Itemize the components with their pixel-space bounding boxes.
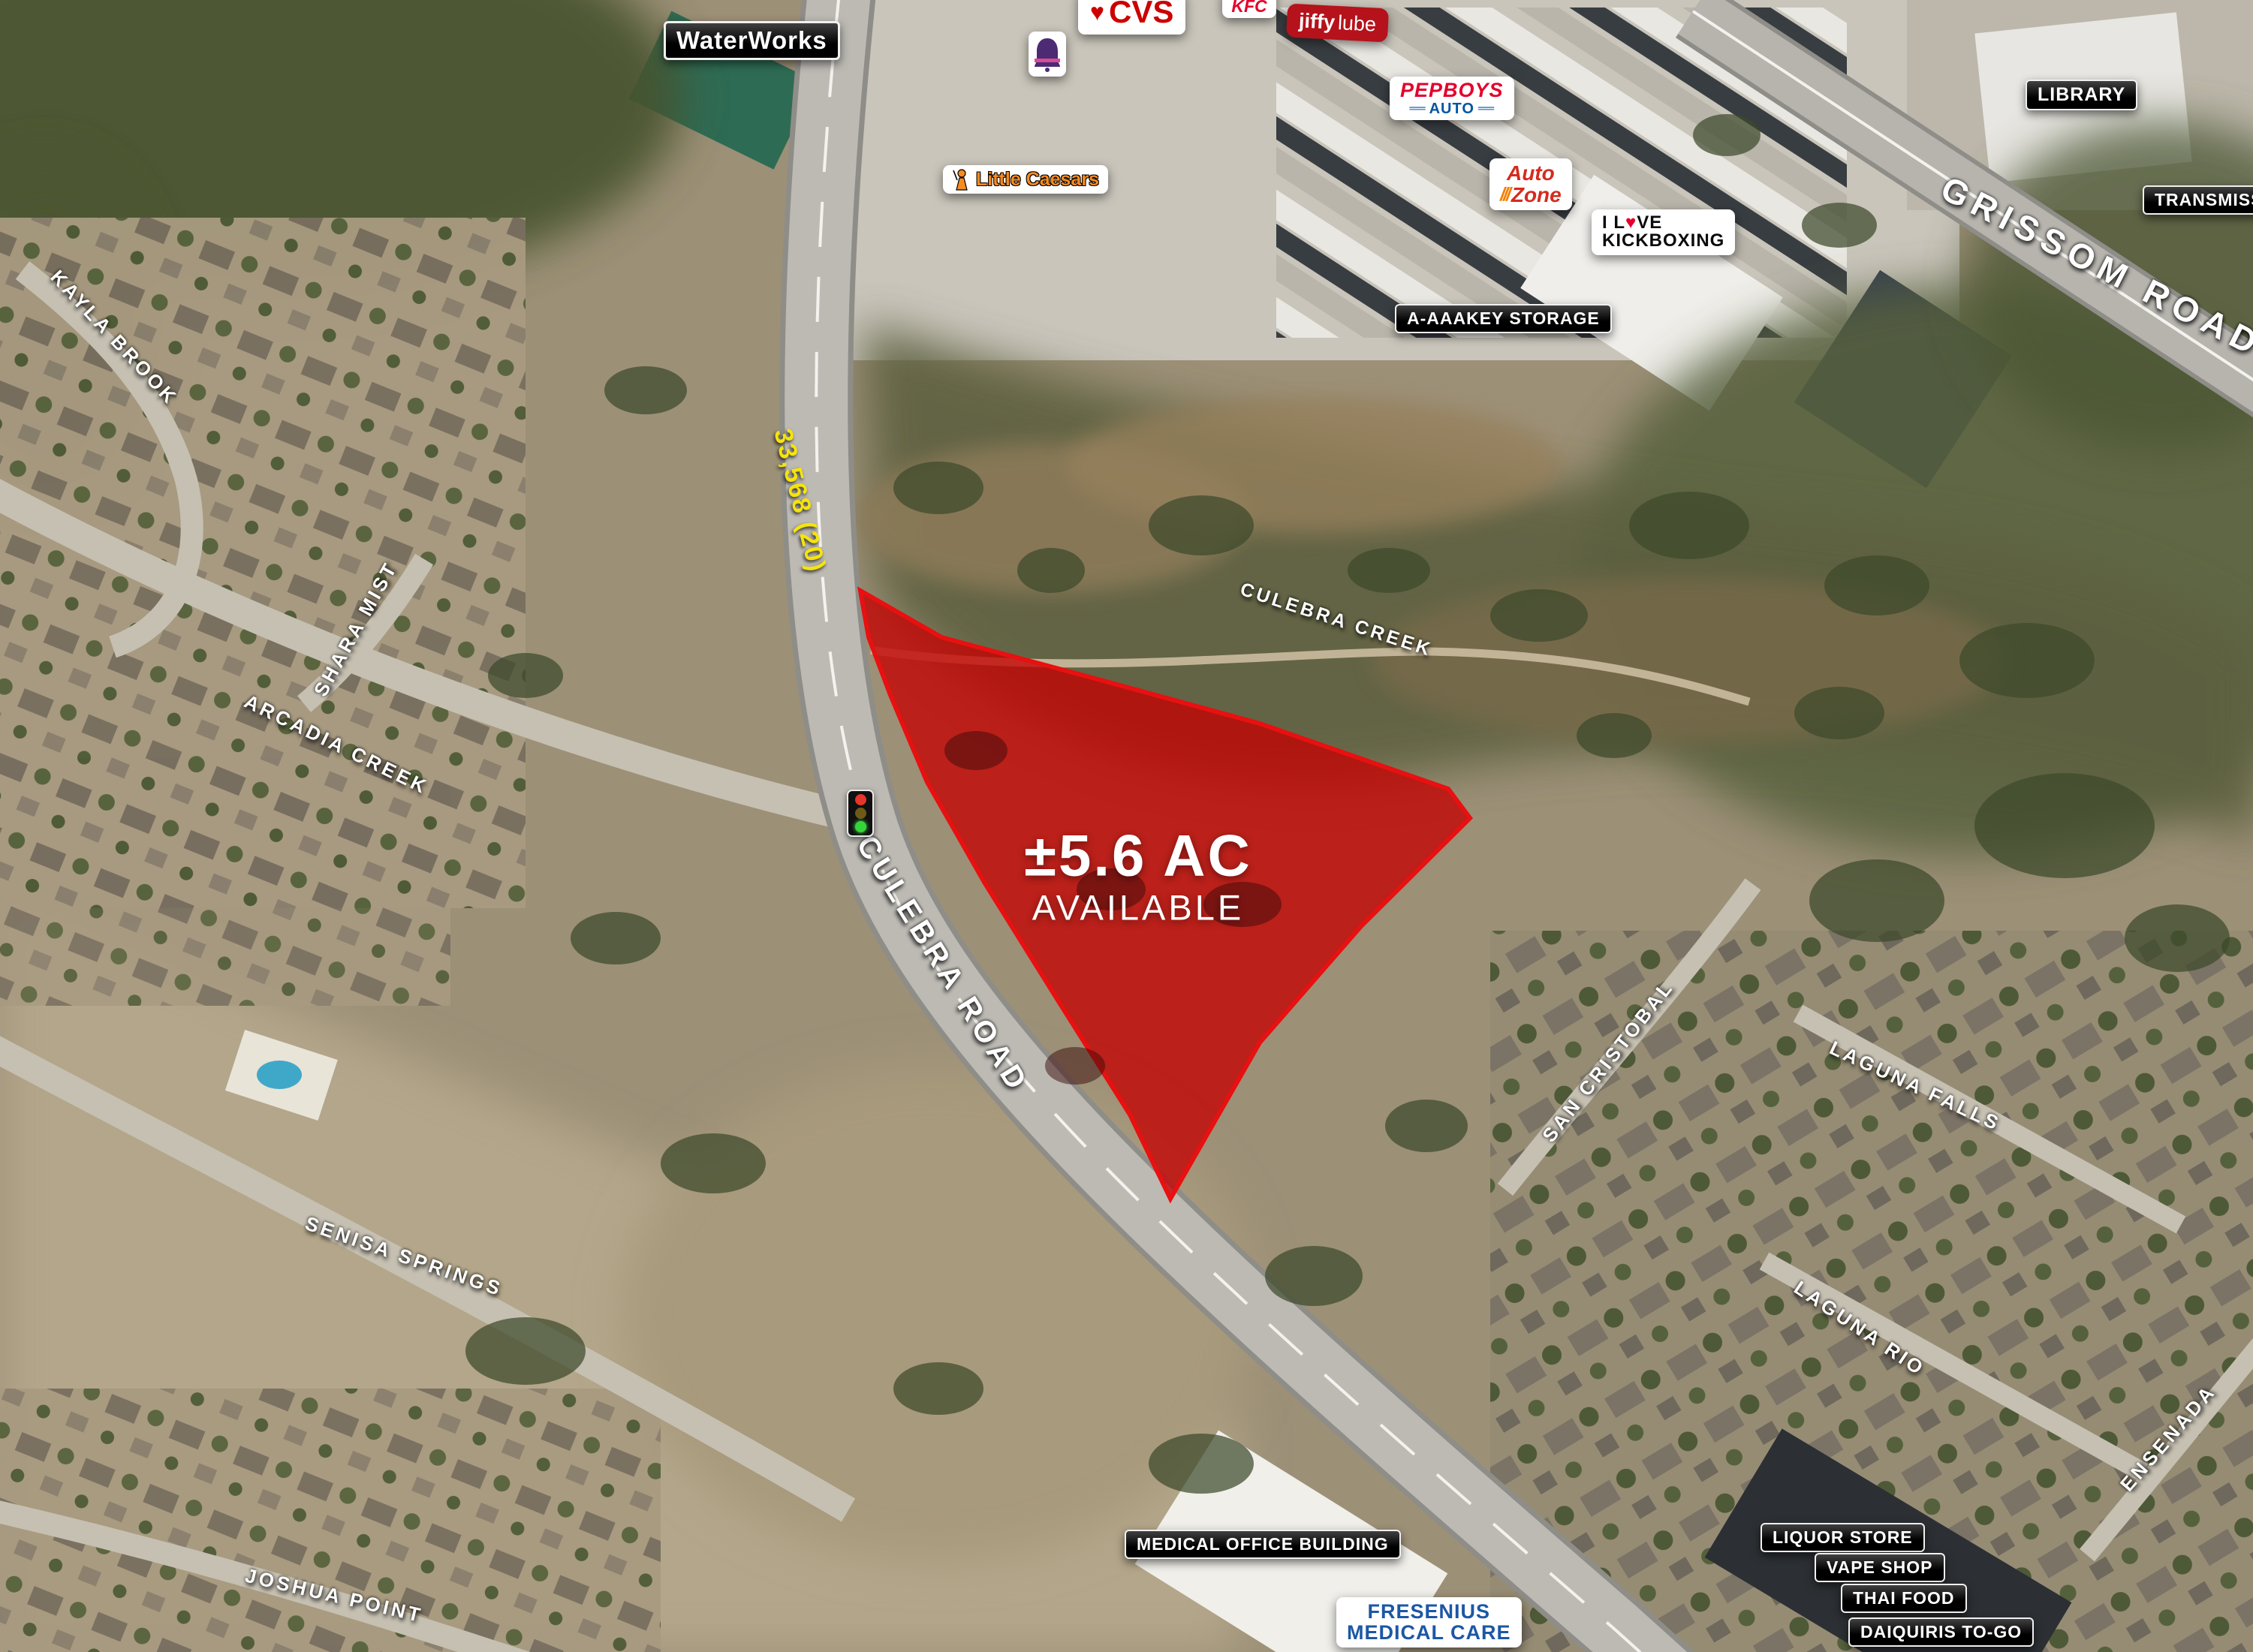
brand-logo-kfc: KFC: [1222, 0, 1276, 18]
parcel-status: AVAILABLE: [1024, 886, 1252, 928]
poi-label-a-aaakey-storage: A-AAAKEY STORAGE: [1395, 304, 1612, 333]
brand-logo-little-caesars: Little Caesars: [943, 165, 1108, 194]
pepboys-bar-left: ══: [1409, 103, 1425, 114]
brand-logo-pepboys: PEPBOYS ══ AUTO ══: [1390, 77, 1514, 120]
little-caesars-wordmark: Little Caesars: [976, 169, 1099, 191]
poi-label-medical-office-building: MEDICAL OFFICE BUILDING: [1125, 1530, 1401, 1559]
ilk-kickboxing-wordmark: KICKBOXING: [1602, 232, 1724, 250]
brand-logo-cvs: ♥ CVS: [1078, 0, 1185, 35]
parcel-acreage: ±5.6 AC: [1024, 826, 1252, 887]
ilk-ve: VE: [1637, 214, 1662, 232]
autozone-zone-wordmark: Zone: [1511, 185, 1562, 206]
pepboys-auto-wordmark: AUTO: [1429, 101, 1474, 116]
neighborhood-left: [0, 758, 450, 1006]
poi-label-liquor-store: LIQUOR STORE: [1761, 1523, 1925, 1552]
traffic-light-red: [855, 794, 866, 805]
aerial-property-map: { "parcel": { "area": "±5.6 AC", "status…: [0, 0, 2253, 1652]
brand-logo-i-love-kickboxing: I L♥VE KICKBOXING: [1592, 209, 1735, 255]
ilk-heart-icon: ♥: [1625, 214, 1637, 232]
traffic-light-green: [855, 821, 866, 832]
jiffy-wordmark: jiffy: [1298, 9, 1336, 34]
taco-bell-bell-icon: [1032, 35, 1062, 73]
poi-label-library: LIBRARY: [2026, 80, 2137, 110]
brand-logo-fresenius: FRESENIUS MEDICAL CARE: [1336, 1597, 1522, 1647]
little-caesars-mascot-icon: [952, 168, 971, 191]
lube-wordmark: lube: [1337, 11, 1377, 37]
fresenius-wordmark: FRESENIUS: [1367, 1602, 1490, 1623]
creek-soil: [1066, 398, 1562, 533]
kfc-wordmark: KFC: [1231, 0, 1267, 15]
poi-label-vape-shop: VAPE SHOP: [1815, 1553, 1945, 1582]
neighborhood-bottom-left: [0, 1389, 661, 1652]
traffic-light-icon: [847, 790, 874, 837]
brand-logo-autozone: Auto /// Zone: [1489, 158, 1572, 210]
cvs-wordmark: CVS: [1109, 0, 1173, 30]
cvs-heart-icon: ♥: [1090, 0, 1104, 26]
poi-label-waterworks: WaterWorks: [664, 21, 840, 60]
poi-label-daiquiris-to-go: DAIQUIRIS TO-GO: [1848, 1617, 2034, 1647]
ilk-i-l: I L: [1602, 214, 1625, 232]
poi-label-thai-food: THAI FOOD: [1841, 1584, 1967, 1613]
pepboys-bar-right: ══: [1478, 103, 1494, 114]
poi-label-transmission: TRANSMISSION: [2143, 185, 2253, 215]
brand-logo-taco-bell: [1029, 32, 1066, 77]
pepboys-wordmark: PEPBOYS: [1400, 80, 1504, 101]
brand-logo-jiffy-lube: jiffy lube: [1286, 3, 1389, 42]
autozone-slashes-icon: ///: [1500, 185, 1509, 205]
autozone-auto-wordmark: Auto: [1507, 163, 1555, 185]
swimming-pool: [257, 1061, 302, 1089]
traffic-light-yellow: [855, 808, 866, 819]
fresenius-medical-care-wordmark: MEDICAL CARE: [1347, 1623, 1511, 1644]
parcel-area-label: ±5.6 AC AVAILABLE: [1024, 826, 1252, 928]
